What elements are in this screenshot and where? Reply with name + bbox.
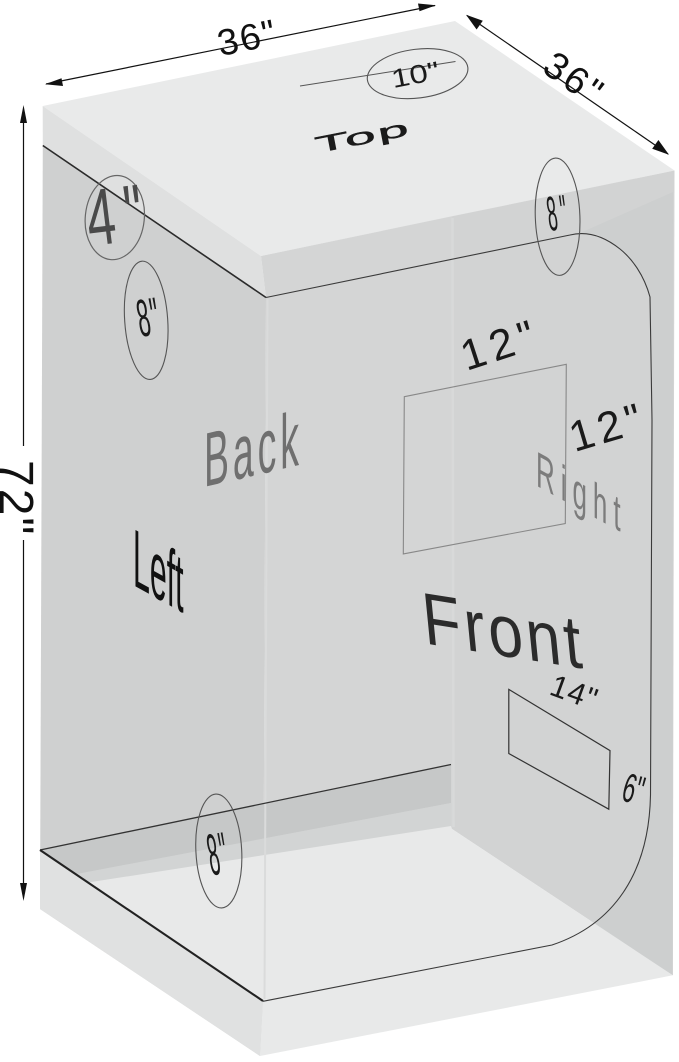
svg-text:4": 4" (81, 167, 157, 264)
svg-text:36": 36" (214, 11, 282, 64)
svg-text:72": 72" (0, 460, 42, 536)
